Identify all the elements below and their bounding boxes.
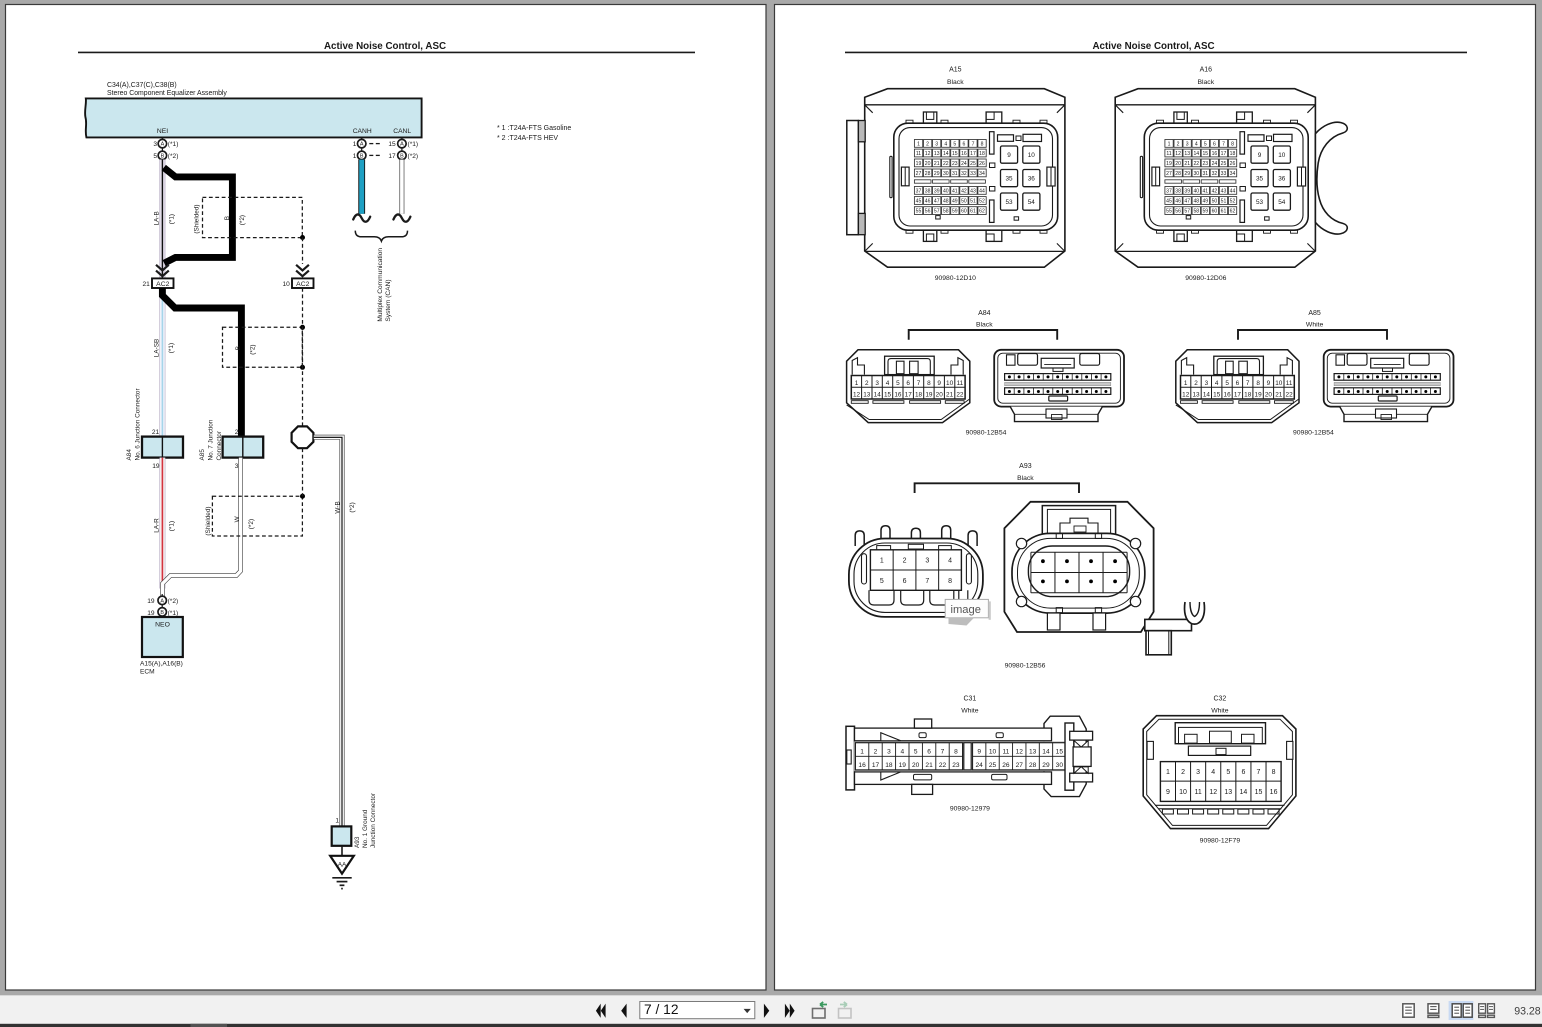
svg-text:6: 6 [927,748,931,755]
svg-text:45: 45 [1166,199,1172,205]
svg-text:3: 3 [235,463,239,470]
svg-text:51: 51 [970,199,976,205]
svg-text:11: 11 [1286,380,1293,387]
svg-text:16: 16 [858,762,866,769]
svg-text:28: 28 [1175,171,1181,177]
svg-text:8: 8 [927,380,931,387]
svg-text:A93: A93 [354,836,361,848]
svg-text:A15: A15 [949,67,962,74]
svg-text:Multiplex Communication: Multiplex Communication [377,248,384,322]
svg-text:15: 15 [1202,151,1208,157]
svg-text:A84: A84 [126,449,133,461]
svg-text:3: 3 [153,141,157,148]
svg-text:15: 15 [1213,392,1221,399]
svg-text:12: 12 [1209,789,1217,796]
svg-text:A: A [360,142,364,148]
svg-text:32: 32 [961,171,967,177]
svg-text:7: 7 [941,748,945,755]
svg-text:Black: Black [947,79,964,86]
svg-text:90980-12D06: 90980-12D06 [1185,275,1226,282]
svg-text:C34(A),C37(C),C38(B): C34(A),C37(C),C38(B) [107,82,177,89]
svg-text:22: 22 [1286,392,1294,399]
svg-text:6: 6 [1241,769,1245,776]
svg-text:Black: Black [1017,475,1034,482]
svg-text:(*1): (*1) [408,141,419,148]
svg-text:10: 10 [989,748,997,755]
svg-text:29: 29 [934,171,940,177]
svg-text:1: 1 [1168,142,1171,148]
svg-text:8: 8 [954,748,958,755]
svg-text:6: 6 [962,142,965,148]
svg-text:ECM: ECM [140,668,155,675]
svg-text:AC2: AC2 [296,281,309,288]
svg-text:LA-R: LA-R [154,518,161,533]
svg-text:10: 10 [1028,152,1036,159]
svg-text:28: 28 [1029,762,1037,769]
svg-text:19: 19 [147,598,155,605]
svg-text:CANH: CANH [353,128,372,135]
svg-text:31: 31 [952,171,958,177]
svg-text:13: 13 [1029,748,1037,755]
svg-text:B: B [235,346,242,350]
svg-text:22: 22 [956,392,964,399]
svg-text:3: 3 [875,380,879,387]
svg-text:40: 40 [943,189,949,195]
svg-text:21: 21 [934,161,940,167]
svg-text:2: 2 [1177,142,1180,148]
svg-text:No. 7 Junction: No. 7 Junction [208,419,215,460]
svg-text:22: 22 [1193,161,1199,167]
svg-text:19: 19 [916,161,922,167]
svg-text:59: 59 [1202,209,1208,215]
svg-text:(*2): (*2) [248,519,255,529]
svg-text:43: 43 [1221,189,1227,195]
svg-text:30: 30 [1056,762,1064,769]
svg-text:26: 26 [1230,161,1236,167]
svg-text:6: 6 [903,578,907,585]
svg-text:23: 23 [1202,161,1208,167]
svg-text:24: 24 [961,161,967,167]
svg-text:B: B [360,154,364,160]
svg-text:14: 14 [943,151,949,157]
svg-text:90980-12979: 90980-12979 [950,806,990,813]
svg-text:1: 1 [335,818,339,825]
svg-text:62: 62 [979,209,985,215]
svg-text:(Shielded): (Shielded) [205,506,212,535]
svg-text:3: 3 [887,748,891,755]
svg-text:A84: A84 [978,310,991,317]
svg-text:17: 17 [1234,392,1242,399]
svg-text:29: 29 [1184,171,1190,177]
svg-text:56: 56 [1175,209,1181,215]
svg-text:15: 15 [1056,748,1064,755]
svg-text:Black: Black [976,322,993,329]
svg-text:58: 58 [1193,209,1199,215]
svg-text:39: 39 [934,189,940,195]
svg-text:White: White [1306,322,1324,329]
svg-text:White: White [1211,707,1229,714]
svg-text:1: 1 [917,142,920,148]
svg-text:(*1): (*1) [168,610,179,617]
svg-text:52: 52 [1230,199,1236,205]
svg-text:5: 5 [914,748,918,755]
svg-text:49: 49 [1202,199,1208,205]
svg-text:11: 11 [1194,789,1201,796]
svg-text:57: 57 [1184,209,1190,215]
svg-text:22: 22 [939,762,947,769]
svg-text:Junction Connector: Junction Connector [370,792,377,848]
svg-text:36: 36 [1278,175,1286,182]
svg-text:AA: AA [338,861,347,868]
svg-text:A85: A85 [199,449,206,461]
svg-text:LA-SB: LA-SB [154,339,161,357]
svg-text:26: 26 [979,161,985,167]
svg-text:48: 48 [1193,199,1199,205]
svg-text:27: 27 [1016,762,1024,769]
svg-text:System (CAN): System (CAN) [385,279,392,321]
svg-text:54: 54 [1028,199,1036,206]
svg-text:2: 2 [874,748,878,755]
svg-text:5: 5 [880,578,884,585]
svg-text:2: 2 [235,429,239,436]
svg-text:12: 12 [853,392,861,399]
svg-text:21: 21 [925,762,933,769]
svg-text:B: B [161,154,165,160]
svg-text:Connector: Connector [216,430,223,460]
svg-text:A85: A85 [1308,310,1321,317]
svg-text:(*2): (*2) [249,344,256,354]
svg-text:NEO: NEO [155,622,170,629]
svg-text:4: 4 [900,748,904,755]
svg-text:21: 21 [1275,392,1283,399]
svg-text:19: 19 [152,463,160,470]
svg-text:(*1): (*1) [168,214,175,224]
svg-text:13: 13 [1224,789,1232,796]
svg-text:14: 14 [1203,392,1211,399]
svg-text:21: 21 [142,281,150,288]
svg-text:60: 60 [961,209,967,215]
svg-text:No. 1 Ground: No. 1 Ground [362,809,369,848]
svg-text:47: 47 [1184,199,1190,205]
svg-text:19: 19 [925,392,933,399]
svg-text:35: 35 [1005,175,1013,182]
svg-text:1: 1 [1166,769,1170,776]
svg-text:10: 10 [1278,152,1286,159]
svg-text:3: 3 [935,142,938,148]
svg-text:(*1): (*1) [168,141,179,148]
svg-text:13: 13 [863,392,871,399]
svg-text:19: 19 [1255,392,1263,399]
svg-text:61: 61 [1221,209,1227,215]
svg-text:17: 17 [388,153,396,160]
svg-text:Black: Black [1197,79,1214,86]
svg-text:49: 49 [952,199,958,205]
svg-text:23: 23 [952,762,960,769]
svg-text:57: 57 [934,209,940,215]
svg-text:C32: C32 [1213,695,1226,702]
svg-text:16: 16 [1212,151,1218,157]
svg-text:14: 14 [874,392,882,399]
svg-text:55: 55 [916,209,922,215]
svg-text:33: 33 [1221,171,1227,177]
svg-text:1: 1 [353,141,357,148]
svg-text:image: image [951,604,981,616]
svg-text:62: 62 [1230,209,1236,215]
svg-text:8: 8 [1272,769,1276,776]
svg-text:6: 6 [1236,380,1240,387]
svg-text:(*2): (*2) [349,502,356,512]
svg-text:47: 47 [934,199,940,205]
svg-text:41: 41 [952,189,958,195]
svg-text:55: 55 [1166,209,1172,215]
svg-text:7: 7 [925,578,929,585]
svg-text:(*2): (*2) [239,215,246,225]
svg-text:12: 12 [1175,151,1181,157]
svg-text:Stereo Component Equalizer Ass: Stereo Component Equalizer Assembly [107,90,227,97]
svg-text:19: 19 [1166,161,1172,167]
svg-text:10: 10 [946,380,954,387]
svg-text:AC2: AC2 [156,281,169,288]
svg-text:5: 5 [896,380,900,387]
svg-text:Active Noise Control, ASC: Active Noise Control, ASC [1092,41,1214,52]
svg-text:NEI: NEI [157,128,168,135]
svg-text:53: 53 [1005,199,1013,206]
svg-text:21: 21 [946,392,954,399]
svg-text:90980-12B54: 90980-12B54 [1293,430,1334,437]
svg-text:8: 8 [1231,142,1234,148]
svg-text:2: 2 [926,142,929,148]
svg-text:19: 19 [147,610,155,617]
svg-text:54: 54 [1278,199,1286,206]
svg-text:1: 1 [1184,380,1188,387]
svg-text:4: 4 [886,380,890,387]
svg-text:A: A [400,142,404,148]
svg-text:Active Noise Control, ASC: Active Noise Control, ASC [324,41,446,52]
svg-text:90980-12B56: 90980-12B56 [1005,662,1046,669]
svg-text:11: 11 [1002,748,1009,755]
svg-text:1: 1 [353,153,357,160]
svg-text:(Shielded): (Shielded) [193,204,200,233]
svg-text:* 2 :T24A-FTS HEV: * 2 :T24A-FTS HEV [497,135,558,142]
svg-text:29: 29 [1042,762,1050,769]
svg-text:40: 40 [1193,189,1199,195]
svg-text:W: W [234,515,241,522]
svg-text:58: 58 [943,209,949,215]
svg-text:60: 60 [1212,209,1218,215]
svg-text:2: 2 [903,558,907,565]
svg-text:(*2): (*2) [168,153,179,160]
svg-text:11: 11 [957,380,964,387]
svg-text:37: 37 [1166,189,1172,195]
svg-text:No. 6 Junction Connector: No. 6 Junction Connector [135,388,142,461]
svg-text:* 1 :T24A-FTS Gasoline: * 1 :T24A-FTS Gasoline [497,125,571,132]
svg-text:CANL: CANL [393,128,411,135]
svg-text:38: 38 [925,189,931,195]
svg-text:30: 30 [1193,171,1199,177]
svg-text:34: 34 [979,171,985,177]
svg-text:B: B [224,216,231,220]
svg-text:LA-B: LA-B [154,211,161,225]
svg-text:11: 11 [1166,151,1171,157]
svg-text:(*1): (*1) [168,343,175,353]
svg-text:5: 5 [1226,769,1230,776]
svg-text:19: 19 [899,762,907,769]
svg-text:9: 9 [1007,152,1011,159]
svg-text:10: 10 [1179,789,1187,796]
svg-text:4: 4 [1211,769,1215,776]
svg-text:A: A [160,599,164,605]
svg-text:20: 20 [925,161,931,167]
svg-text:(*1): (*1) [168,521,175,531]
svg-text:18: 18 [979,151,985,157]
svg-text:17: 17 [1221,151,1227,157]
svg-text:93.28: 93.28 [1514,1005,1541,1017]
svg-text:9: 9 [1267,380,1271,387]
svg-text:5: 5 [953,142,956,148]
svg-text:2: 2 [865,380,869,387]
svg-text:16: 16 [961,151,967,157]
svg-text:30: 30 [943,171,949,177]
svg-text:9: 9 [1166,789,1170,796]
svg-text:44: 44 [979,189,985,195]
svg-text:56: 56 [925,209,931,215]
svg-text:15: 15 [1255,789,1263,796]
svg-text:28: 28 [925,171,931,177]
svg-text:4: 4 [1195,142,1198,148]
svg-text:16: 16 [1270,789,1278,796]
svg-text:42: 42 [1212,189,1218,195]
svg-text:6: 6 [906,380,910,387]
svg-text:5: 5 [153,153,157,160]
svg-text:27: 27 [916,171,922,177]
svg-text:13: 13 [1192,392,1200,399]
svg-text:15: 15 [884,392,892,399]
svg-text:2: 2 [1181,769,1185,776]
svg-text:15: 15 [388,141,396,148]
svg-text:3: 3 [1196,769,1200,776]
svg-text:White: White [961,707,979,714]
svg-text:5: 5 [1204,142,1207,148]
svg-text:B: B [400,154,404,160]
svg-text:18: 18 [915,392,923,399]
svg-text:4: 4 [944,142,947,148]
svg-text:61: 61 [970,209,976,215]
svg-text:(*2): (*2) [168,598,179,605]
svg-text:W-B: W-B [335,501,342,513]
svg-text:46: 46 [1175,199,1181,205]
svg-text:50: 50 [961,199,967,205]
svg-text:A93: A93 [1019,463,1032,470]
svg-text:8: 8 [1256,380,1260,387]
svg-text:5: 5 [1225,380,1229,387]
svg-text:1: 1 [860,748,864,755]
svg-text:15: 15 [952,151,958,157]
svg-text:14: 14 [1239,789,1247,796]
svg-text:25: 25 [970,161,976,167]
svg-text:90980-12F79: 90980-12F79 [1200,837,1241,844]
svg-text:90980-12D10: 90980-12D10 [935,275,976,282]
svg-text:C31: C31 [963,695,976,702]
svg-text:10: 10 [282,281,290,288]
svg-text:17: 17 [872,762,880,769]
svg-text:17: 17 [970,151,976,157]
svg-text:50: 50 [1212,199,1218,205]
svg-text:13: 13 [934,151,940,157]
svg-text:4: 4 [948,558,952,565]
svg-text:53: 53 [1256,199,1264,206]
svg-text:21: 21 [1184,161,1190,167]
svg-text:B: B [160,610,164,616]
svg-text:7: 7 [1222,142,1225,148]
svg-text:14: 14 [1193,151,1199,157]
svg-text:17: 17 [905,392,913,399]
svg-text:27: 27 [1166,171,1172,177]
svg-text:16: 16 [894,392,902,399]
svg-text:32: 32 [1212,171,1218,177]
svg-text:18: 18 [1230,151,1236,157]
svg-text:13: 13 [1184,151,1190,157]
svg-text:4: 4 [1215,380,1219,387]
svg-text:39: 39 [1184,189,1190,195]
svg-text:11: 11 [916,151,921,157]
svg-text:8: 8 [981,142,984,148]
svg-text:35: 35 [1256,175,1264,182]
svg-text:34: 34 [1230,171,1236,177]
svg-text:2: 2 [1194,380,1198,387]
svg-text:18: 18 [1244,392,1252,399]
svg-text:3: 3 [925,558,929,565]
svg-text:37: 37 [916,189,922,195]
svg-text:42: 42 [961,189,967,195]
svg-text:24: 24 [976,762,984,769]
svg-text:7: 7 [1246,380,1250,387]
svg-text:59: 59 [952,209,958,215]
svg-text:7: 7 [1257,769,1261,776]
svg-text:(*2): (*2) [408,153,419,160]
svg-text:45: 45 [916,199,922,205]
svg-text:7 / 12: 7 / 12 [644,1002,679,1017]
svg-text:20: 20 [912,762,920,769]
svg-text:14: 14 [1042,748,1050,755]
svg-text:18: 18 [885,762,893,769]
svg-text:23: 23 [952,161,958,167]
svg-text:12: 12 [1016,748,1024,755]
svg-text:A16: A16 [1200,67,1213,74]
svg-text:9: 9 [1258,152,1262,159]
svg-text:43: 43 [970,189,976,195]
svg-text:48: 48 [943,199,949,205]
svg-text:21: 21 [152,429,160,436]
svg-text:7: 7 [972,142,975,148]
svg-text:6: 6 [1213,142,1216,148]
svg-text:41: 41 [1202,189,1208,195]
svg-text:25: 25 [1221,161,1227,167]
svg-text:38: 38 [1175,189,1181,195]
svg-text:A15(A),A16(B): A15(A),A16(B) [140,661,183,668]
svg-text:51: 51 [1221,199,1227,205]
svg-text:12: 12 [925,151,931,157]
svg-text:A: A [161,142,165,148]
svg-text:20: 20 [1265,392,1273,399]
svg-text:22: 22 [943,161,949,167]
svg-text:1: 1 [880,558,884,565]
svg-text:16: 16 [1224,392,1232,399]
svg-text:20: 20 [1175,161,1181,167]
svg-text:25: 25 [989,762,997,769]
svg-text:33: 33 [970,171,976,177]
svg-text:10: 10 [1275,380,1283,387]
svg-text:12: 12 [1182,392,1190,399]
